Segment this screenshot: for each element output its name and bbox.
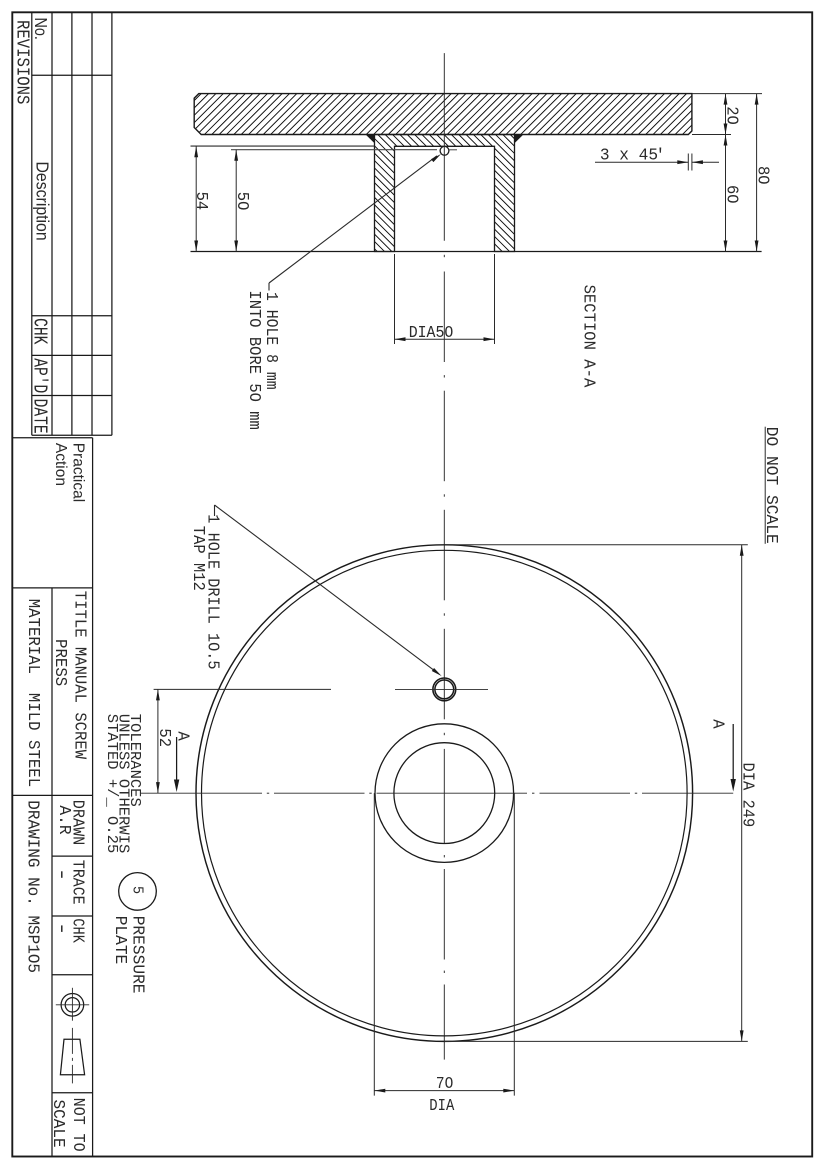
svg-text:MATERIAL MILD STEEL: MATERIAL MILD STEEL (24, 599, 44, 787)
svg-text:6O: 6O (722, 185, 742, 204)
svg-text:Practical: Practical (70, 443, 87, 502)
svg-text:DO NOT SCALE: DO NOT SCALE (762, 427, 781, 544)
svg-text:52: 52 (155, 728, 175, 747)
svg-text:SCALE: SCALE (49, 1100, 69, 1148)
svg-text:TAP M12: TAP M12 (189, 526, 209, 591)
svg-text:DIA5O: DIA5O (409, 323, 454, 342)
svg-text:A: A (173, 731, 193, 741)
svg-text:REVISIONS: REVISIONS (11, 20, 32, 104)
svg-text:DIA 249: DIA 249 (738, 763, 758, 828)
svg-text:5: 5 (128, 886, 145, 894)
svg-text:NOT TO: NOT TO (68, 1098, 87, 1152)
svg-text:CHK: CHK (68, 918, 88, 943)
svg-text:54: 54 (192, 192, 212, 211)
svg-text:8O: 8O (753, 166, 773, 185)
svg-text:STATED +/_ O.25: STATED +/_ O.25 (103, 714, 119, 853)
svg-text:PRESS: PRESS (51, 639, 71, 686)
svg-text:TRACE: TRACE (68, 860, 87, 905)
svg-text:INTO BORE 5O mm: INTO BORE 5O mm (245, 290, 265, 429)
svg-text:DATE: DATE (28, 399, 49, 434)
svg-text:7O: 7O (436, 1074, 453, 1093)
svg-text:5O: 5O (233, 192, 253, 211)
svg-text:CHK: CHK (28, 318, 49, 345)
svg-text:A.R: A.R (55, 805, 74, 834)
svg-text:Action: Action (52, 443, 69, 486)
svg-text:DRAWING No. MSP1O5: DRAWING No. MSP1O5 (23, 800, 43, 973)
svg-text:SECTION A-A: SECTION A-A (579, 285, 599, 388)
svg-text:DIA: DIA (429, 1096, 455, 1116)
svg-text:AP'D: AP'D (28, 358, 49, 393)
svg-text:TITLE MANUAL SCREW: TITLE MANUAL SCREW (70, 591, 90, 759)
svg-text:A: A (708, 719, 728, 729)
svg-text:2O: 2O (722, 106, 742, 125)
svg-text:No.: No. (31, 18, 51, 40)
svg-text:Description: Description (32, 162, 52, 241)
svg-text:PLATE: PLATE (111, 916, 130, 965)
